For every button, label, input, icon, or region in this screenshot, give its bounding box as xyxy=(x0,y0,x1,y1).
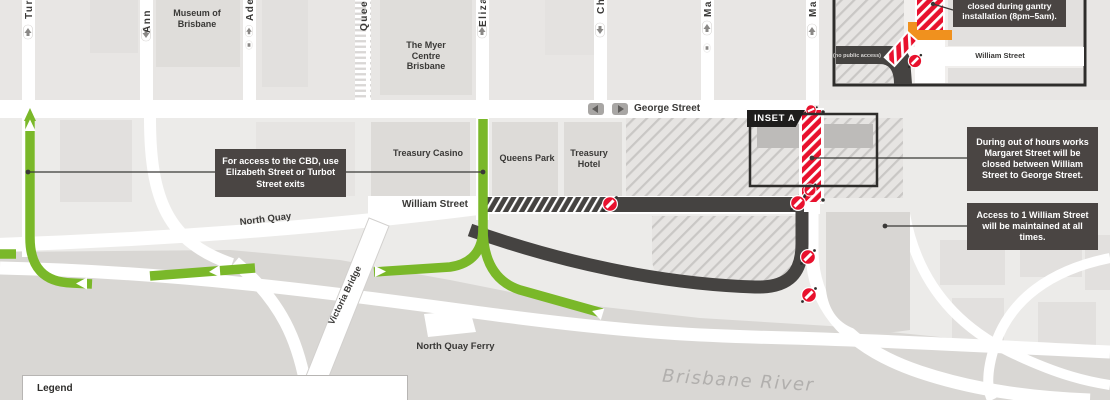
no-entry-icon xyxy=(908,54,922,68)
transit-icon xyxy=(246,41,252,49)
inset-a-tag: INSET A xyxy=(747,110,805,127)
one-william-street-building xyxy=(826,212,910,333)
queens-park-label: Queens Park xyxy=(497,153,557,164)
road-closure-map: Turbot Ann Adelaide Queen Elizabeth Char… xyxy=(0,0,1110,400)
street-label: Adelaide xyxy=(245,0,256,21)
no-entry-icon xyxy=(602,196,618,212)
museum-of-brisbane-label: Museum of Brisbane xyxy=(157,8,237,29)
inset-no-public-access-label: (no public access) xyxy=(833,53,881,59)
charlotte-street xyxy=(594,0,607,105)
map-canvas: Turbot Ann Adelaide Queen Elizabeth Char… xyxy=(0,0,1110,400)
inset-william-street-label: William Street xyxy=(950,52,1050,61)
gantry-installation-callout: closed during gantry installation (8pm–5… xyxy=(953,0,1066,27)
arrow-up-icon xyxy=(808,24,817,38)
inset-margaret-closure xyxy=(917,0,943,32)
cbd-access-callout: For access to the CBD, use Elizabeth Str… xyxy=(215,149,346,197)
arrow-up-icon xyxy=(24,25,33,39)
no-entry-icon xyxy=(801,287,817,303)
arrow-left-icon xyxy=(588,103,604,115)
myer-centre-label: The Myer Centre Brisbane xyxy=(394,40,458,72)
street-label: Charlotte xyxy=(596,0,607,14)
legend-title: Legend xyxy=(37,383,73,394)
arrow-up-icon xyxy=(703,21,712,35)
arrow-right-icon xyxy=(612,103,628,115)
transit-icon xyxy=(704,44,710,52)
street-label: Turbot xyxy=(24,0,35,19)
william-street-closed xyxy=(604,197,804,212)
street-label: Ann xyxy=(142,9,153,33)
treasury-hotel-label: Treasury Hotel xyxy=(558,148,620,169)
no-entry-icon xyxy=(800,249,816,265)
treasury-casino-building xyxy=(371,122,470,196)
arrow-down-icon xyxy=(596,23,605,37)
treasury-casino-label: Treasury Casino xyxy=(388,148,468,159)
north-quay-ferry-label: North Quay Ferry xyxy=(403,341,508,352)
william-street-closed-hatched xyxy=(487,197,606,212)
legend-box: Legend xyxy=(22,375,408,400)
street-label: Elizabeth xyxy=(478,0,489,27)
william-street-label: William Street xyxy=(368,199,468,211)
arrow-up-icon xyxy=(245,25,252,36)
margaret-street-closure-callout: During out of hours works Margaret Stree… xyxy=(967,127,1098,191)
william-street-access-callout: Access to 1 William Street will be maint… xyxy=(967,203,1098,250)
street-label: Margaret xyxy=(808,0,819,17)
no-entry-icon xyxy=(790,195,806,211)
street-label: Mary xyxy=(703,0,714,17)
street-label: Queen xyxy=(359,0,370,31)
george-street-label: George Street xyxy=(634,103,729,115)
